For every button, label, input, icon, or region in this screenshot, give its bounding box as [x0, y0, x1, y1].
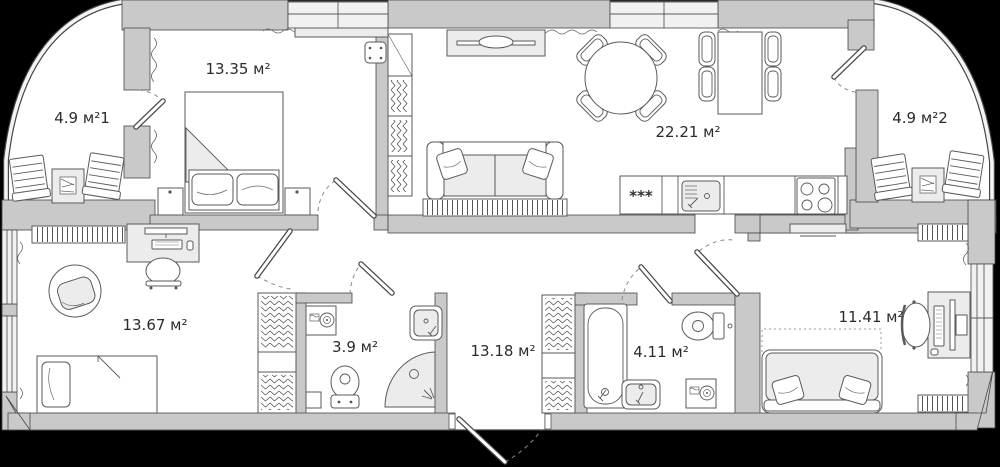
- floor-plan-svg: ***: [0, 0, 1000, 467]
- washing-machine-icon: [686, 379, 716, 408]
- room-label-balcony-2: 4.9 м²2: [892, 109, 948, 127]
- side-table-icon: [912, 168, 944, 202]
- desk: [127, 224, 199, 262]
- radiator: [32, 226, 125, 243]
- cabinet: [306, 392, 321, 408]
- bedroom-2-window-upper: [2, 230, 17, 304]
- entrance-jamb-right: [545, 414, 551, 429]
- closet-hatch: [545, 381, 572, 410]
- side-table-icon: [52, 169, 84, 203]
- washing-machine-icon: [306, 306, 336, 335]
- closet-hatch: [261, 375, 293, 410]
- closet-hatch: [261, 296, 293, 349]
- sofa: [427, 142, 563, 199]
- room-label-bedroom-2: 13.67 м²: [122, 316, 187, 334]
- chair-icon: [765, 32, 781, 66]
- sofa: [762, 350, 882, 413]
- stove-icon: [797, 178, 835, 214]
- room-label-hallway: 13.18 м²: [470, 342, 535, 360]
- entrance-jamb-left: [449, 414, 455, 429]
- deck-chair-icon: [7, 155, 50, 202]
- kitchen-counter: ***: [620, 176, 847, 214]
- single-bed: [37, 356, 157, 413]
- stool: [365, 42, 386, 63]
- pillow: [42, 362, 70, 407]
- hallway-wardrobe: [542, 295, 575, 413]
- toilet-icon: [331, 366, 359, 408]
- bedroom-3-window: [971, 264, 993, 372]
- bathtub-icon: [584, 304, 627, 408]
- window-sill: [295, 28, 388, 37]
- chair-icon: [765, 67, 781, 101]
- radiator: [918, 395, 968, 412]
- bedroom-2-window-lower: [2, 316, 17, 392]
- desk: [928, 292, 970, 358]
- sink-icon: [622, 380, 660, 409]
- room-label-bedroom-1: 13.35 м²: [205, 60, 270, 78]
- room-label-living-kitchen: 22.21 м²: [655, 123, 720, 141]
- mouse-icon: [187, 241, 193, 250]
- room-label-balcony-1: 4.9 м²1: [54, 109, 110, 127]
- mouse-icon: [931, 349, 938, 355]
- pillow: [192, 174, 233, 205]
- sink-icon: [410, 306, 442, 340]
- chair-icon: [699, 67, 715, 101]
- bookshelf: [388, 34, 412, 196]
- closet-hatch: [545, 298, 572, 350]
- floor-plan-canvas: ***: [0, 0, 1000, 467]
- closet: [258, 293, 296, 413]
- sink-icon: [682, 181, 720, 211]
- freezer-icon: ***: [629, 187, 653, 205]
- radiator: [423, 199, 567, 216]
- bedroom-1-window: [288, 2, 388, 28]
- books: [391, 80, 409, 112]
- toilet-icon: [682, 312, 732, 340]
- armchair: [49, 265, 101, 317]
- room-label-bathroom-1: 3.9 м²: [332, 338, 378, 356]
- books: [391, 120, 409, 152]
- dining-table: [574, 32, 668, 123]
- desk-chair: [146, 258, 181, 290]
- radiator: [918, 224, 968, 241]
- tv-icon: [447, 30, 545, 56]
- room-label-bathroom-2: 4.11 м²: [633, 343, 689, 361]
- chair-icon: [699, 32, 715, 66]
- books: [391, 160, 409, 192]
- living-window: [610, 2, 718, 28]
- room-label-bedroom-3: 11.41 м²: [838, 308, 903, 326]
